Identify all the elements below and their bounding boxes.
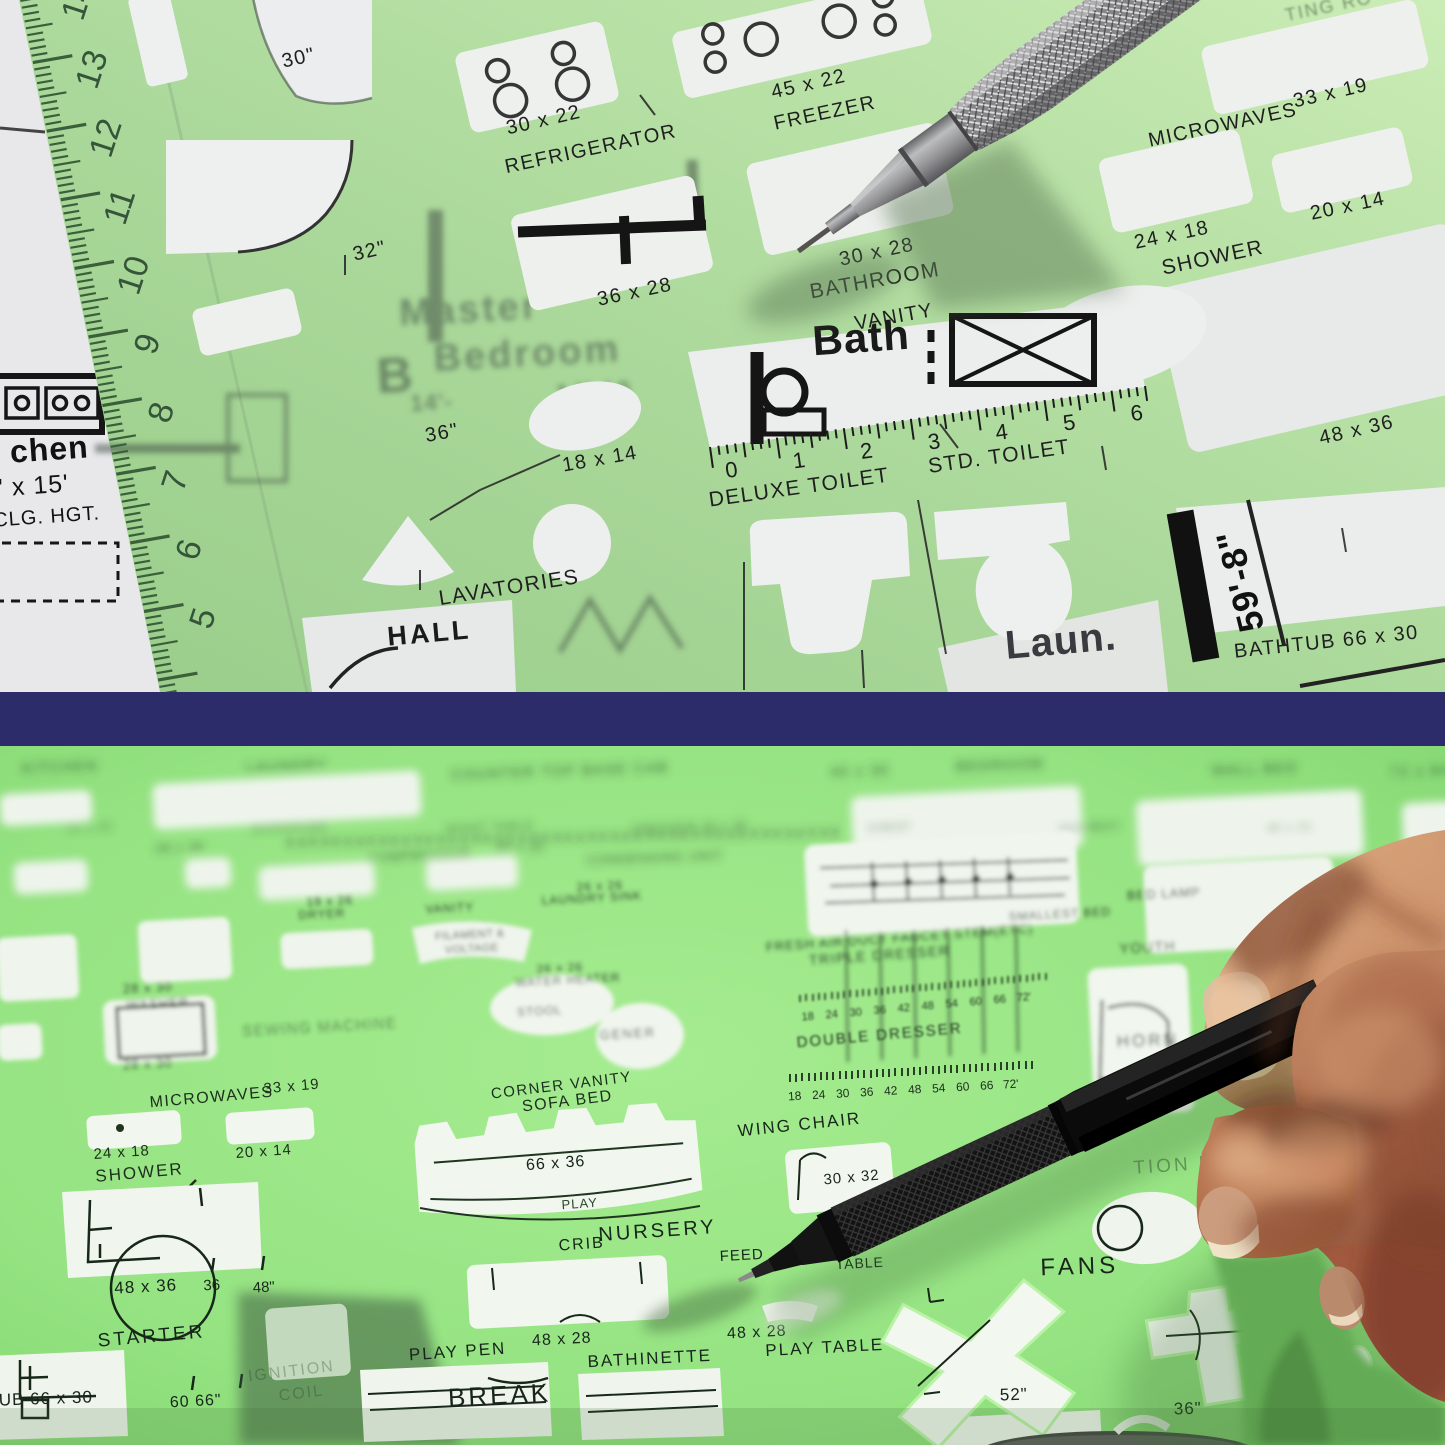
svg-text:42 x 21: 42 x 21 <box>1266 819 1313 835</box>
svg-text:18: 18 <box>788 1089 803 1104</box>
svg-text:54: 54 <box>932 1081 947 1096</box>
svg-text:" x 15': " x 15' <box>0 469 70 502</box>
svg-text:28 x 30: 28 x 30 <box>155 839 205 856</box>
svg-text:PLAY: PLAY <box>561 1195 598 1212</box>
svg-text:STOOL: STOOL <box>517 1003 563 1019</box>
svg-text:66: 66 <box>980 1078 995 1093</box>
svg-text:48 x 36: 48 x 36 <box>114 1275 178 1297</box>
svg-text:FANS: FANS <box>1040 1252 1120 1282</box>
svg-text:GENER: GENER <box>599 1025 656 1043</box>
svg-text:28 x 30: 28 x 30 <box>123 979 173 997</box>
svg-text:30: 30 <box>849 1006 862 1019</box>
svg-text:24: 24 <box>812 1087 827 1102</box>
svg-text:DRYER: DRYER <box>298 906 345 922</box>
svg-text:52": 52" <box>1000 1385 1029 1405</box>
svg-text:YOUTH: YOUTH <box>1119 938 1176 957</box>
svg-text:CRIB: CRIB <box>558 1234 605 1254</box>
svg-text:48 x 28: 48 x 28 <box>532 1329 592 1349</box>
svg-text:36: 36 <box>860 1085 875 1100</box>
svg-text:36: 36 <box>873 1004 886 1017</box>
svg-text:CHEST: CHEST <box>867 819 913 835</box>
svg-text:BEDROOM: BEDROOM <box>956 755 1045 775</box>
svg-text:66: 66 <box>993 993 1006 1006</box>
svg-text:KITCHEN: KITCHEN <box>21 758 98 778</box>
svg-text:60: 60 <box>969 995 982 1008</box>
svg-text:20 x 20: 20 x 20 <box>495 839 545 856</box>
svg-text:Master: Master <box>398 285 541 334</box>
svg-text:42: 42 <box>884 1083 899 1098</box>
svg-text:14'-: 14'- <box>410 388 454 416</box>
svg-text:UB 66 x 30: UB 66 x 30 <box>0 1387 93 1409</box>
svg-text:18: 18 <box>801 1011 814 1024</box>
svg-text:BREAK: BREAK <box>447 1377 552 1412</box>
svg-text:42: 42 <box>897 1002 910 1015</box>
svg-text:VANITY: VANITY <box>425 900 474 917</box>
svg-text:chen: chen <box>9 428 90 469</box>
svg-text:WARDROBE: WARDROBE <box>251 819 330 836</box>
svg-text:48: 48 <box>908 1082 923 1097</box>
svg-text:WALL BED: WALL BED <box>1211 759 1298 779</box>
svg-text:30: 30 <box>836 1086 851 1101</box>
svg-text:40 x 30: 40 x 30 <box>830 762 890 781</box>
svg-text:72 x 84: 72 x 84 <box>1390 762 1445 781</box>
svg-text:LAUNDRY: LAUNDRY <box>246 757 328 777</box>
svg-text:60: 60 <box>956 1079 971 1094</box>
svg-text:FEED: FEED <box>719 1246 764 1265</box>
svg-text:54: 54 <box>945 998 958 1011</box>
svg-text:36: 36 <box>203 1277 221 1295</box>
svg-text:72': 72' <box>1002 1077 1019 1092</box>
svg-text:24: 24 <box>825 1008 838 1021</box>
svg-text:48: 48 <box>921 1000 934 1013</box>
svg-text:72': 72' <box>1016 991 1031 1004</box>
svg-text:28 x 30: 28 x 30 <box>123 1055 173 1073</box>
svg-text:24 x 21: 24 x 21 <box>66 819 113 835</box>
